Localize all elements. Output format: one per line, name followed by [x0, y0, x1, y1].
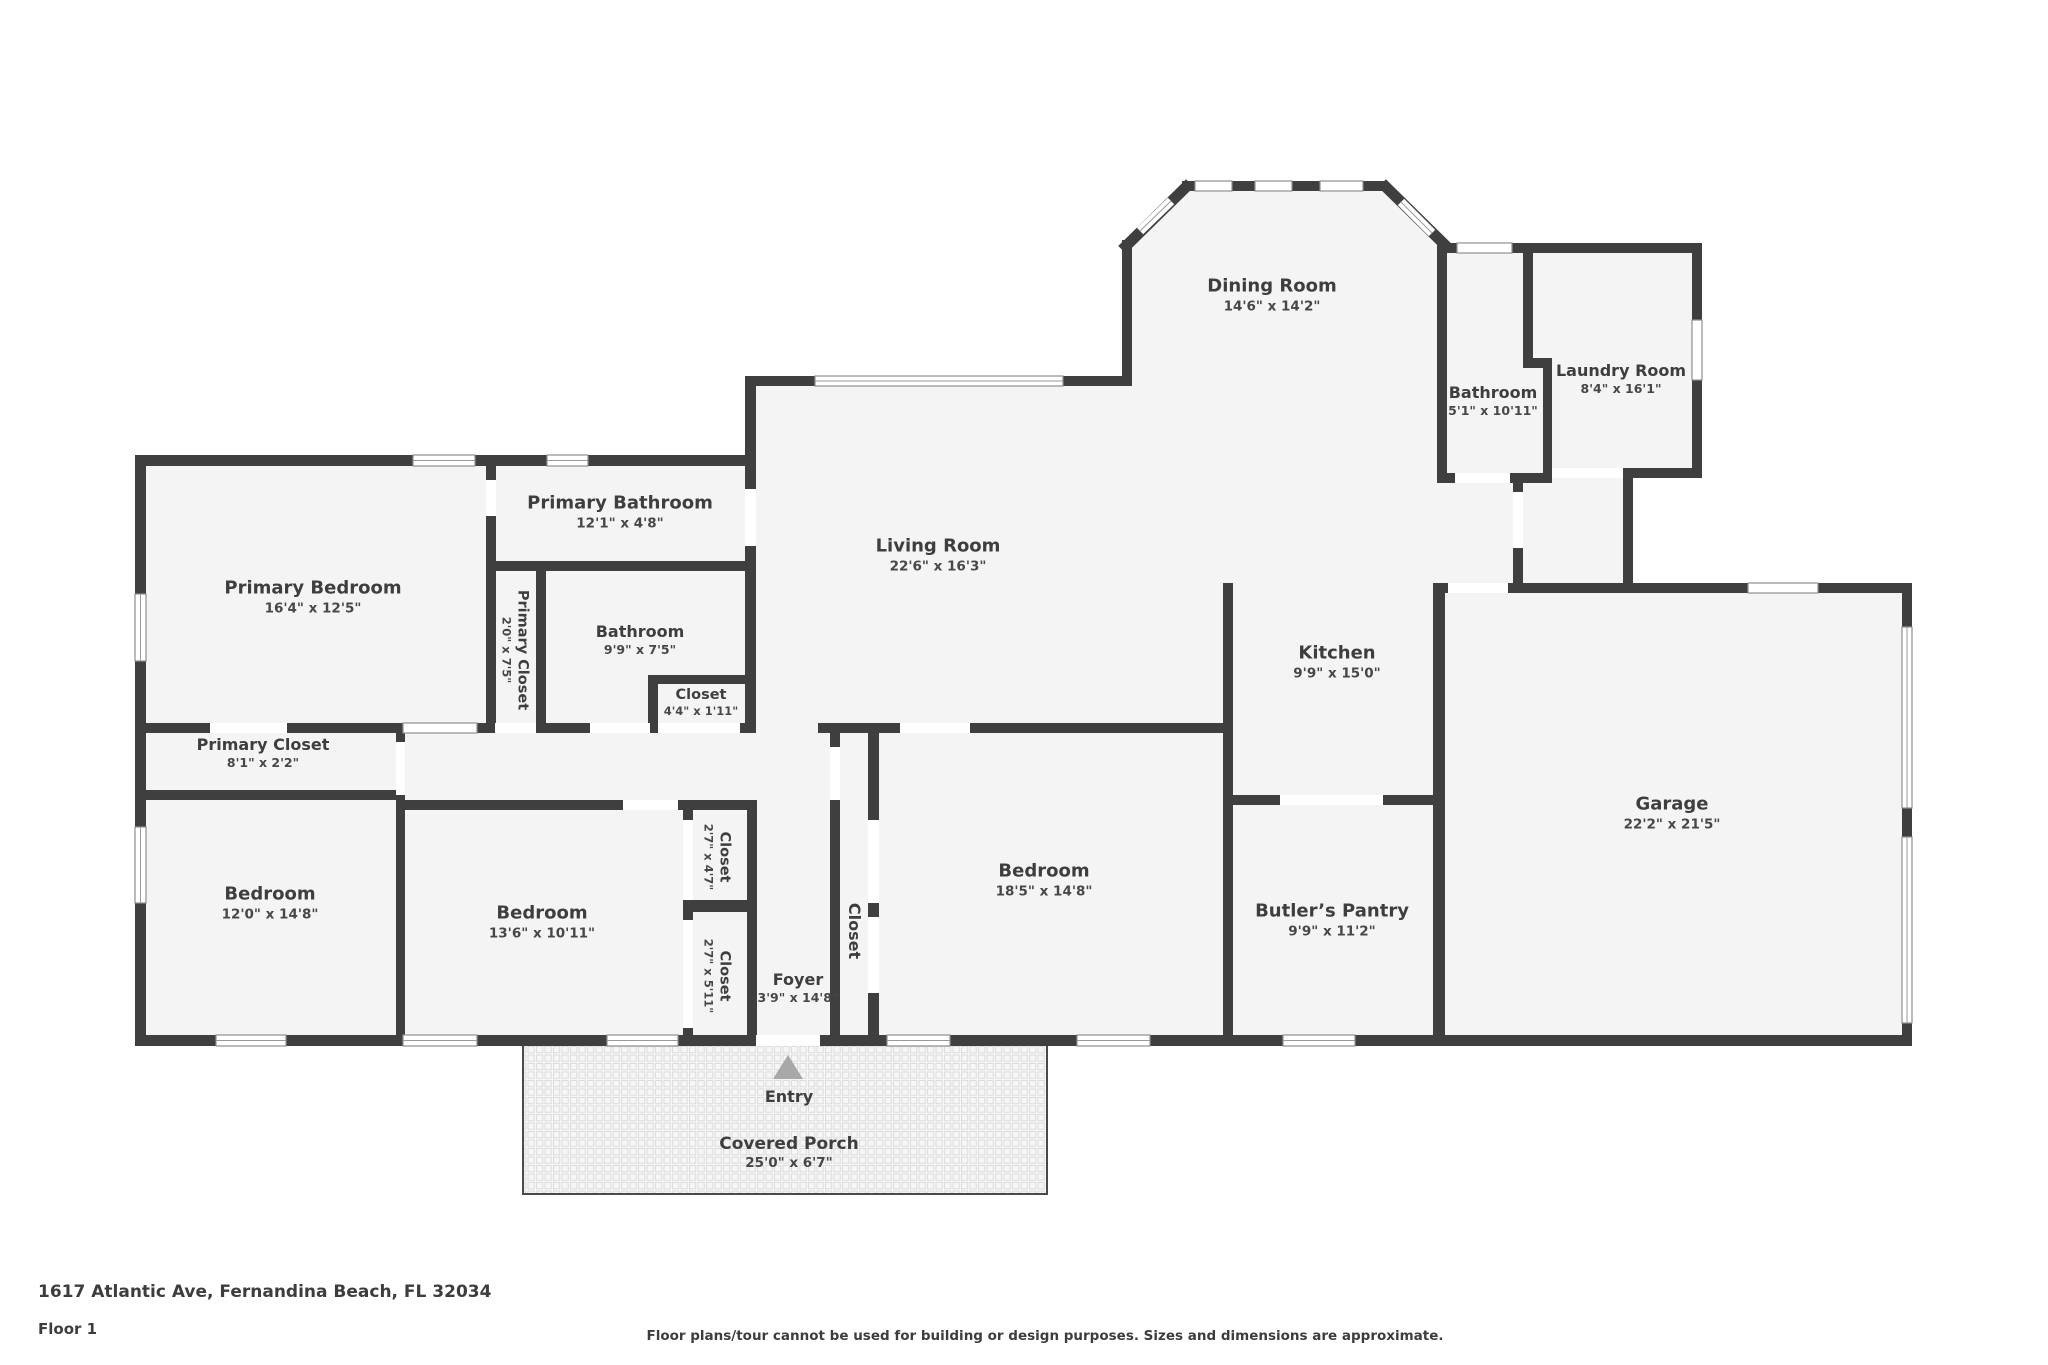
- disclaimer-text: Floor plans/tour cannot be used for buil…: [646, 1328, 1443, 1344]
- room-label-closet-foyer: Closet: [844, 903, 864, 959]
- room-label-closet-47: Closet2'7" x 4'7": [701, 824, 734, 890]
- room-label-butlers-pantry: Butler’s Pantry9'9" x 11'2": [1255, 900, 1409, 939]
- room-label-garage: Garage22'2" x 21'5": [1624, 793, 1721, 832]
- floorplan-drawing: [0, 0, 2048, 1365]
- room-label-bathroom-top: Bathroom5'1" x 10'11": [1448, 383, 1538, 419]
- room-label-covered-porch: Covered Porch 25'0" x 6'7": [719, 1134, 858, 1172]
- room-label-foyer: Foyer3'9" x 14'8": [758, 970, 839, 1006]
- room-label-kitchen: Kitchen9'9" x 15'0": [1293, 642, 1380, 681]
- room-label-dining: Dining Room14'6" x 14'2": [1207, 275, 1336, 314]
- room-label-primary-bathroom: Primary Bathroom12'1" x 4'8": [527, 492, 713, 531]
- floorplan-page: Dining Room14'6" x 14'2" Living Room22'6…: [0, 0, 2048, 1365]
- entry-label: Entry: [765, 1087, 813, 1107]
- room-label-closet-small: Closet4'4" x 1'11": [664, 686, 738, 719]
- room-label-primary-closet-wide: Primary Closet8'1" x 2'2": [197, 735, 330, 771]
- room-label-living: Living Room22'6" x 16'3": [876, 535, 1001, 574]
- room-label-primary-closet-tall: Primary Closet2'0" x 7'5": [499, 590, 532, 710]
- floor-label: Floor 1: [38, 1320, 97, 1338]
- room-label-bathroom-mid: Bathroom9'9" x 7'5": [596, 622, 685, 658]
- room-label-bedroom-big: Bedroom18'5" x 14'8": [996, 860, 1093, 899]
- room-label-bedroom-mid: Bedroom13'6" x 10'11": [489, 902, 595, 941]
- room-label-bedroom-left: Bedroom12'0" x 14'8": [222, 883, 319, 922]
- address-text: 1617 Atlantic Ave, Fernandina Beach, FL …: [38, 1282, 491, 1302]
- room-label-closet-511: Closet2'7" x 5'11": [701, 939, 734, 1013]
- room-label-laundry: Laundry Room8'4" x 16'1": [1556, 361, 1686, 397]
- room-label-primary-bedroom: Primary Bedroom16'4" x 12'5": [224, 577, 401, 616]
